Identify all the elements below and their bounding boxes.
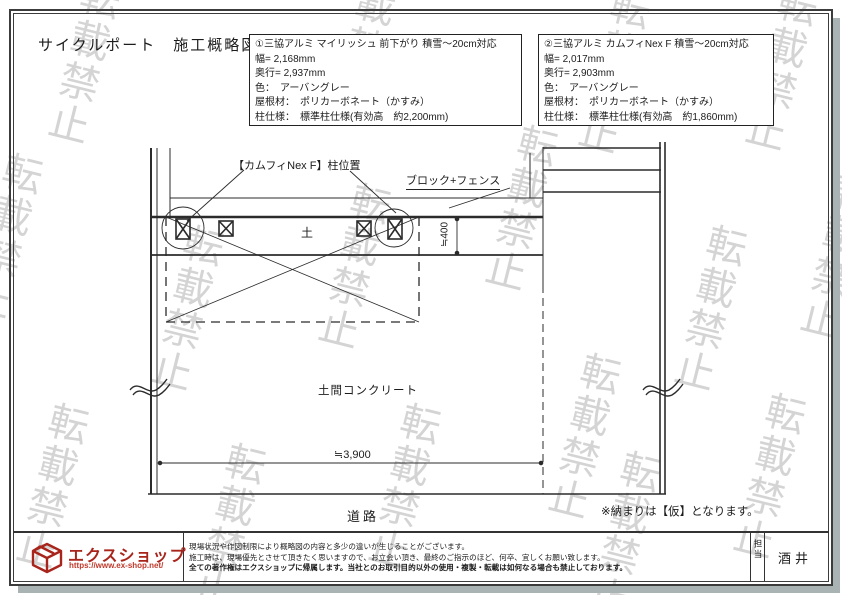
road-label: 道路 xyxy=(347,506,379,525)
spec-2-roof: 屋根材： ポリカーボネート（かすみ） xyxy=(544,96,768,111)
disclaimer-line-1: 現場状況や作図制限により概略図の内容と多少の違いが生じることがございます。 xyxy=(189,542,747,553)
spec-2-depth: 奥行= 2,903mm xyxy=(544,67,768,82)
staff-label: 担当 xyxy=(751,539,764,560)
spec-1-depth: 奥行= 2,937mm xyxy=(255,67,516,82)
block-fence-label: ブロック+フェンス xyxy=(406,172,500,190)
exshop-box-icon xyxy=(30,541,64,575)
pillar-position-label: 【カムフィNex F】柱位置 xyxy=(233,157,360,173)
spec-1-roof: 屋根材： ポリカーボネート（かすみ） xyxy=(255,96,516,111)
spec-2-header: ②三協アルミ カムフィNex F 積雪～20cm対応 xyxy=(544,38,768,53)
spec-box-1: ①三協アルミ マイリッシュ 前下がり 積雪～20cm対応 幅= 2,168mm … xyxy=(249,34,522,126)
dim-3900-label: ≒3,900 xyxy=(334,448,371,461)
soil-label: 土 xyxy=(301,224,313,241)
footer-separator xyxy=(13,531,829,533)
spec-box-2: ②三協アルミ カムフィNex F 積雪～20cm対応 幅= 2,017mm 奥行… xyxy=(538,34,774,126)
tentative-note: ※納まりは【仮】となります。 xyxy=(601,503,759,519)
spec-2-post: 柱仕様： 標準柱仕様(有効高 約1,860mm) xyxy=(544,111,768,126)
drawing-sheet: 転載禁止 転載禁止 転載禁止 転載禁止 転載禁止 転載禁止 転載禁止 転載禁止 … xyxy=(0,0,842,595)
spec-1-color: 色： アーバングレー xyxy=(255,82,516,97)
dim-400-label: ≒400 xyxy=(440,216,451,254)
spec-1-width: 幅= 2,168mm xyxy=(255,53,516,68)
disclaimer-line-2: 施工時は、現場優先とさせて頂きたく思いますので、お立会い頂き、最終のご指示のほど… xyxy=(189,553,747,564)
disclaimer-line-3: 全ての著作権はエクスショップに帰属します。当社とのお取引目的以外の使用・複製・転… xyxy=(189,563,747,574)
spec-2-color: 色： アーバングレー xyxy=(544,82,768,97)
spec-1-header: ①三協アルミ マイリッシュ 前下がり 積雪～20cm対応 xyxy=(255,38,516,53)
spec-2-width: 幅= 2,017mm xyxy=(544,53,768,68)
concrete-label: 土間コンクリート xyxy=(318,382,418,398)
page-title: サイクルポート 施工概略図 xyxy=(38,34,258,55)
disclaimer-block: 現場状況や作図制限により概略図の内容と多少の違いが生じることがございます。 施工… xyxy=(189,542,747,574)
spec-1-post: 柱仕様： 標準柱仕様(有効高 約2,200mm) xyxy=(255,111,516,126)
footer-divider xyxy=(764,533,765,581)
exshop-url: https://www.ex-shop.net/ xyxy=(69,561,163,570)
staff-name: 酒井 xyxy=(778,548,812,567)
